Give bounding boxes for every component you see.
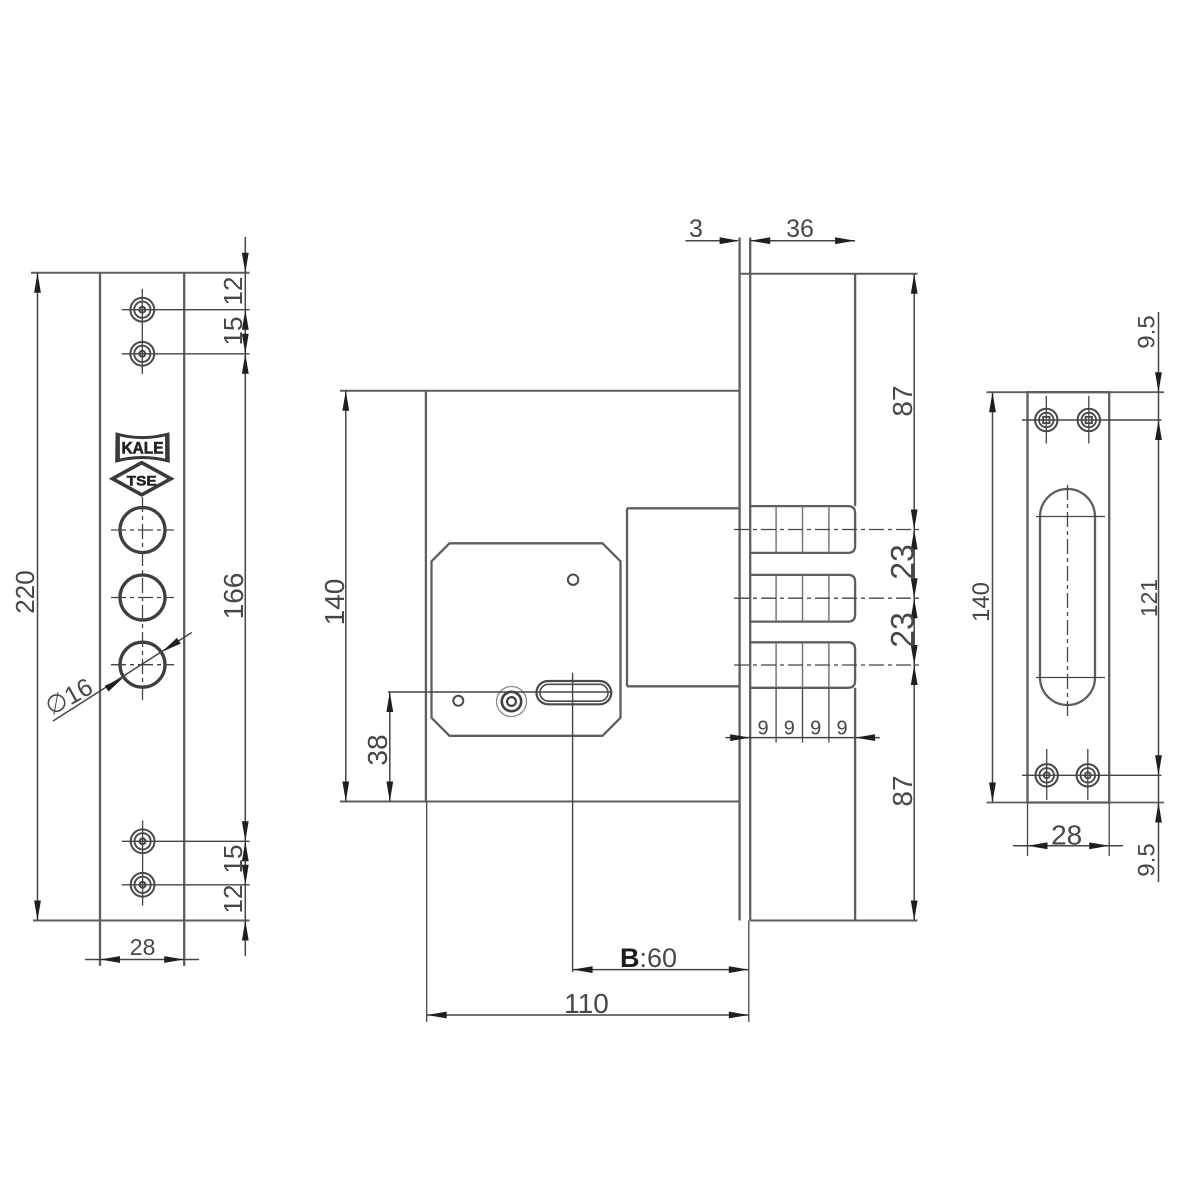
- svg-text:9: 9: [836, 718, 847, 740]
- svg-text:28: 28: [1051, 820, 1082, 851]
- svg-text:15: 15: [218, 317, 248, 346]
- svg-text:9: 9: [757, 718, 768, 740]
- svg-text:87: 87: [887, 775, 918, 806]
- svg-text:87: 87: [887, 385, 918, 416]
- svg-text:9.5: 9.5: [1134, 315, 1161, 348]
- svg-text:121: 121: [1136, 579, 1162, 617]
- svg-text:3: 3: [689, 215, 703, 243]
- svg-text:38: 38: [362, 734, 393, 765]
- svg-text:140: 140: [968, 582, 995, 622]
- svg-text:36: 36: [786, 215, 814, 243]
- svg-text:23: 23: [885, 612, 921, 648]
- svg-text:12: 12: [218, 885, 248, 914]
- svg-text:28: 28: [130, 934, 156, 960]
- svg-text:12: 12: [218, 277, 248, 306]
- svg-text:140: 140: [319, 579, 350, 626]
- svg-text:220: 220: [10, 570, 40, 613]
- svg-text:110: 110: [564, 988, 609, 1019]
- svg-text:KALE: KALE: [122, 439, 164, 458]
- svg-text:23: 23: [885, 544, 921, 580]
- svg-text:9: 9: [810, 718, 821, 740]
- svg-text:B:60: B:60: [620, 943, 677, 973]
- svg-text:166: 166: [218, 573, 249, 620]
- svg-text:9: 9: [784, 718, 795, 740]
- svg-text:9.5: 9.5: [1134, 843, 1161, 876]
- svg-text:TSE: TSE: [127, 473, 157, 489]
- svg-text:15: 15: [218, 845, 248, 874]
